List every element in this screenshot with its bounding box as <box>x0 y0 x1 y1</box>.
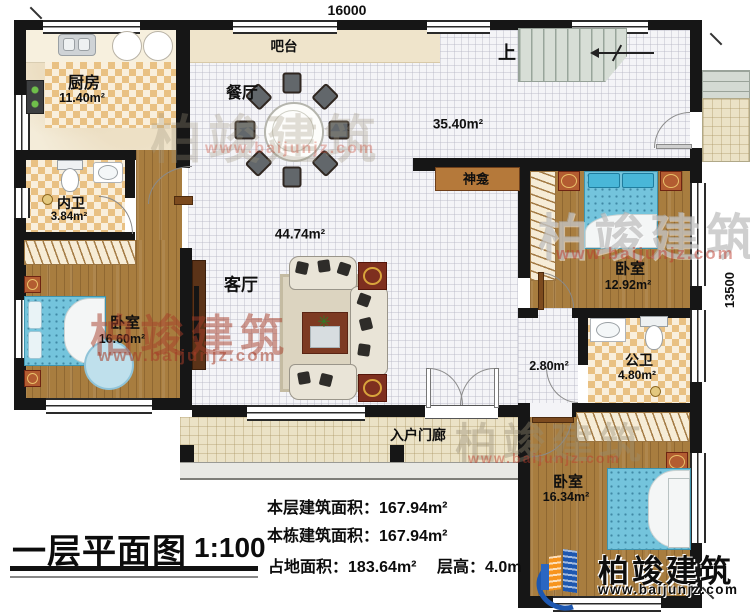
bedroom-bottom-area: 16.34m² <box>543 490 590 504</box>
side-porch-steps <box>702 70 750 100</box>
stairs-arrow-line <box>598 52 654 54</box>
sofa-pillow <box>357 343 371 357</box>
nightstand <box>24 370 41 387</box>
window-top-dining <box>233 20 337 34</box>
side-stool-bottom <box>358 374 387 402</box>
innerbath-area: 3.84m² <box>51 211 87 223</box>
porch-column-right <box>390 445 404 462</box>
wall-innerbath-right-a <box>125 160 135 198</box>
kitchen-burner-left <box>112 31 142 61</box>
stat-building-area-label: 本栋建筑面积： <box>267 528 379 545</box>
hall-area: 2.80m² <box>529 359 569 373</box>
bar-label: 吧台 <box>271 35 298 55</box>
kitchen-sink-bowl-left <box>63 38 75 51</box>
publicbath-label: 公卫 <box>625 350 653 370</box>
stat-building-area-value: 167.94m² <box>379 528 448 545</box>
watermark-url: www.baijunjz.com <box>98 346 277 366</box>
stat-floor-area-label: 本层建筑面积： <box>267 500 379 517</box>
closet-bedroom-left <box>24 240 136 265</box>
wall-kitchen-bottom <box>14 150 136 160</box>
innerbath-label: 内卫 <box>57 193 85 213</box>
dimension-tick <box>30 7 43 20</box>
stairs-up-label: 上 <box>498 39 516 65</box>
wall-right-upper <box>690 20 702 112</box>
side-stool-top <box>358 262 387 290</box>
title-underline-thick <box>10 566 258 571</box>
kitchen-stove <box>26 80 44 114</box>
logo-company-url: www.baijunjz.com <box>598 582 739 597</box>
porch-column-left <box>180 445 194 462</box>
dining-chair <box>283 73 302 94</box>
window-left-innerbath <box>14 188 30 218</box>
bed-right-pillow <box>588 173 620 188</box>
dimension-right: 13500 <box>722 272 737 308</box>
kitchen-label: 厨房 <box>68 69 100 93</box>
dimension-tick <box>710 33 723 46</box>
living-area: 44.74m² <box>275 227 325 242</box>
stat-height-label: 层高： <box>437 559 485 576</box>
living-label: 客厅 <box>224 271 258 296</box>
open-area-label: 35.40m² <box>433 117 483 132</box>
window-living-bottom <box>247 405 365 421</box>
porch-label: 入户门廊 <box>390 425 446 445</box>
window-top-stairs <box>427 20 490 34</box>
window-publicbath <box>690 310 706 382</box>
stat-land-area-value: 183.64m² <box>348 559 417 576</box>
nightstand <box>660 171 682 191</box>
door-leaf-side-entry <box>656 144 692 149</box>
wall-publicbath-left <box>578 318 588 365</box>
company-logo <box>536 546 594 600</box>
door-arc-innerbath <box>99 196 133 234</box>
logo-building-orange <box>549 555 561 591</box>
title-underline-thin <box>10 576 258 578</box>
bed-bottom-side-table <box>668 478 690 548</box>
wall-living-bottom-1 <box>192 405 247 417</box>
innerbath-sink-basin <box>98 165 118 180</box>
stairs-arrow-head <box>590 48 599 58</box>
logo-building-blue <box>563 549 577 593</box>
bedroom-right-area: 12.92m² <box>605 278 652 292</box>
bed-right-pillow <box>622 173 654 188</box>
door-leaf-corridor <box>174 196 193 205</box>
watermark-company: 柏竣建筑 <box>150 98 382 173</box>
door-leaf-bedroom-right <box>538 272 544 310</box>
nightstand <box>24 276 41 293</box>
bed-left-pillow <box>28 331 42 359</box>
watermark-url: www.baijunjz.com <box>205 140 375 158</box>
stat-height: 层高：4.0m <box>437 559 521 576</box>
publicbath-toilet-bowl <box>645 325 663 350</box>
watermark-url: www.baijunjz.com <box>468 450 621 466</box>
innerbath-toilet-bowl <box>61 168 79 192</box>
innerbath-floor-drain <box>42 194 53 205</box>
stat-floor-area: 本层建筑面积：167.94m² <box>267 494 448 518</box>
watermark-url: www.baijunjz.com <box>556 244 735 264</box>
dimension-top: 16000 <box>328 2 367 18</box>
logo-building-blue-small <box>541 564 549 590</box>
stat-land-area: 占地面积：183.64m² 层高：4.0m <box>268 553 521 577</box>
plan-scale: 1:100 <box>194 532 266 564</box>
sofa-pillow <box>295 261 309 275</box>
wall-living-bottom-2 <box>365 405 425 417</box>
stat-floor-area-value: 167.94m² <box>379 500 448 517</box>
kitchen-area: 11.40m² <box>59 91 105 105</box>
wall-bedroomright-bottom <box>572 308 690 318</box>
bar-counter <box>190 30 440 63</box>
kitchen-sink-bowl-right <box>78 38 90 51</box>
window-bedroomleft-bottom <box>46 398 152 414</box>
stairs <box>518 28 627 82</box>
publicbath-floor-drain <box>650 386 661 397</box>
plant-icon: ✳ <box>317 312 330 332</box>
stat-building-area: 本栋建筑面积：167.94m² <box>267 522 448 546</box>
sofa-pillow <box>317 259 331 273</box>
bedroom-bottom-label: 卧室 <box>553 471 583 492</box>
floor-plan-canvas: ✳ 厨房 11.40m² 吧台 餐厅 35.40m² 上 神龛 内卫 <box>0 0 750 614</box>
nightstand <box>558 171 580 191</box>
stat-height-value: 4.0m <box>485 559 521 576</box>
publicbath-area: 4.80m² <box>618 368 656 382</box>
window-bedroombottom-right <box>690 453 706 543</box>
wall-divider-corner <box>518 308 538 318</box>
bed-left-pillow <box>28 301 42 329</box>
stat-land-area-label: 占地面积： <box>268 559 348 576</box>
shrine-label: 神龛 <box>463 169 489 188</box>
entry-door-leaf-right <box>494 368 499 408</box>
publicbath-sink-basin <box>596 322 620 338</box>
kitchen-burner-right <box>143 31 173 61</box>
side-porch-floor <box>702 98 750 162</box>
sofa-pillow <box>297 371 311 385</box>
